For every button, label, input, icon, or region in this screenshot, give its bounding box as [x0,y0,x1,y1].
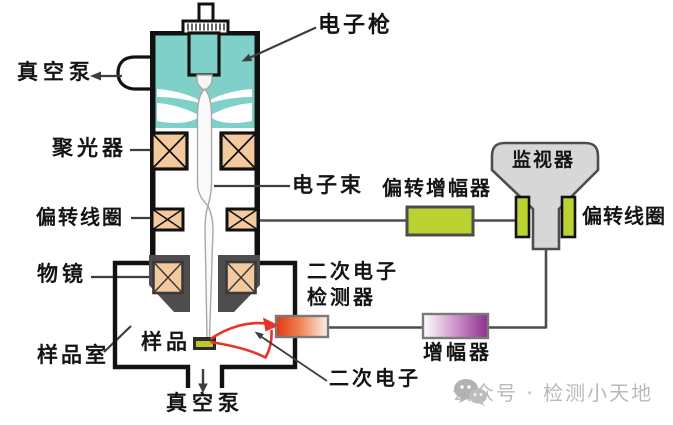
label-monitor: 监视器 [512,150,575,171]
electron-beam [197,75,213,338]
label-objective-lens: 物镜 [37,263,87,286]
vacuum-pump-bottom-arrow [198,369,208,393]
label-deflection-coil-left: 偏转线圈 [36,206,124,228]
wehnelt-cylinder [189,33,219,75]
label-electron-beam: 电子束 [292,174,364,197]
label-secondary-electron: 二次电子 [329,367,421,389]
vacuum-pipe [118,57,150,89]
label-amplifier: 增幅器 [423,341,492,363]
label-electron-gun: 电子枪 [318,14,393,38]
objective-lens [149,255,260,312]
label-sample: 样品 [141,331,191,354]
label-deflection-amplifier: 偏转增幅器 [382,177,492,199]
secondary-electron-detector-box [276,316,328,337]
label-vacuum-pump-bottom: 真空泵 [166,392,244,415]
deflection-amplifier-box [407,207,473,235]
monitor-deflection-coil-right [562,197,575,237]
amplifier-box [423,314,488,338]
label-vacuum-pump-top: 真空泵 [17,61,95,84]
label-sample-chamber: 样品室 [37,344,109,367]
label-condenser: 聚光器 [52,137,127,160]
sem-schematic-diagram: 电子枪 真空泵 聚光器 电子束 偏转线圈 物镜 样品 样品室 真空泵 偏转增幅器… [0,0,673,425]
label-se-detector-line2: 检测器 [307,286,376,308]
secondary-electron-fan [211,323,272,357]
watermark: 公众号 · 检测小天地 [452,377,653,406]
label-deflection-coil-right: 偏转线圈 [582,205,666,227]
monitor-deflection-coil-left [516,197,529,237]
wechat-icon [452,377,488,407]
label-se-detector-line1: 二次电子 [307,260,399,282]
electron-gun-arrow-line [251,28,316,58]
circuit-lines [260,221,546,329]
